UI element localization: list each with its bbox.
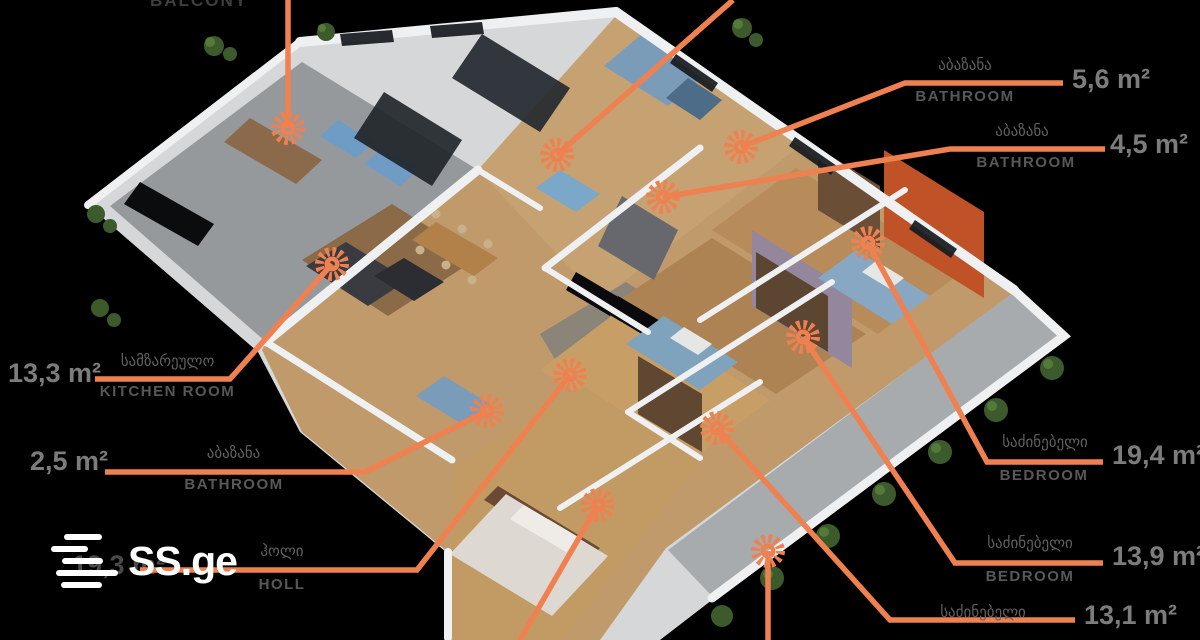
- listing-floorplan-image: 19,3 m²: [0, 0, 1200, 640]
- floorplan-3d-render: [0, 0, 1200, 640]
